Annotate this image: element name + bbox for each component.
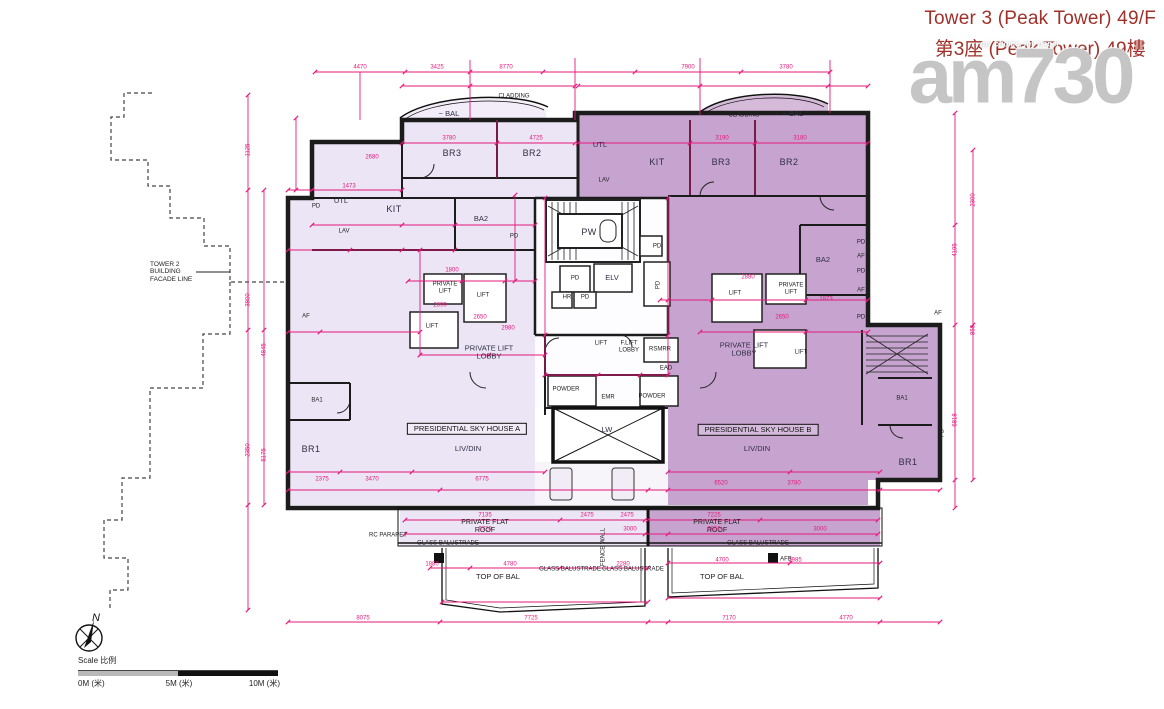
- dimension-label: 2300: [971, 193, 978, 206]
- dimension-label: 3000: [813, 527, 826, 534]
- plan-label: TOP OF BAL: [700, 573, 744, 581]
- north-arrow-icon: [72, 618, 112, 658]
- dimension-label: 4845: [262, 343, 269, 356]
- dimension-label: 1473: [342, 184, 355, 191]
- plan-label: PD: [312, 204, 320, 211]
- plan-labels: ~ BALCLADDINGBR3BR2PDUTLKITLAVBA2PDPRIVA…: [0, 0, 1164, 709]
- scale-segment-black: [178, 671, 278, 676]
- plan-label: PW: [581, 227, 596, 237]
- plan-label: PD: [656, 281, 663, 289]
- plan-label: PD: [940, 429, 947, 437]
- plan-label: CLADDING: [728, 113, 759, 120]
- plan-label: HR: [563, 295, 572, 302]
- scale-tick-5m: 5M (米): [166, 678, 193, 689]
- dimension-label: 6720: [478, 527, 491, 534]
- dimension-label: 8075: [356, 616, 369, 623]
- dimension-label: 2880: [741, 275, 754, 282]
- plan-label: ~ BAL: [439, 110, 460, 118]
- dimension-label: 4725: [529, 136, 542, 143]
- plan-label: AF: [302, 314, 310, 321]
- plan-label: GLASS BALUSTRADE: [602, 567, 664, 574]
- plan-label: BR2: [780, 157, 799, 167]
- dimension-label: 6850: [707, 527, 720, 534]
- scale-tick-0m: 0M (米): [78, 678, 105, 689]
- plan-label: LIFT: [729, 291, 741, 298]
- dimension-label: 3780: [442, 136, 455, 143]
- dimension-label: 3470: [365, 477, 378, 484]
- plan-label: KIT: [649, 157, 664, 167]
- plan-label: LIV/DIN: [455, 445, 481, 453]
- dimension-label: 2650: [473, 315, 486, 322]
- dimension-label: 2350: [246, 443, 253, 456]
- dimension-label: 1985: [788, 558, 801, 565]
- plan-label: PD: [653, 244, 661, 251]
- plan-label: RC PARAPET: [369, 533, 407, 540]
- dimension-label: 4780: [503, 562, 516, 569]
- plan-label: LW: [602, 426, 613, 434]
- plan-label: POWDER: [553, 387, 580, 394]
- dimension-label: 2690: [433, 303, 446, 310]
- plan-label: LAV: [599, 178, 610, 185]
- scale-bar: Scale 比例 0M (米) 5M (米) 10M (米): [78, 655, 280, 690]
- plan-label: LIFT: [426, 324, 438, 331]
- plan-label: PRIVATE LIFT: [775, 282, 807, 295]
- dimension-label: 1125: [246, 144, 253, 157]
- dimension-label: 8770: [499, 65, 512, 72]
- dimension-label: 6775: [475, 477, 488, 484]
- plan-label: TOWER 2 BUILDING FACADE LINE: [150, 261, 200, 283]
- dimension-label: 6520: [714, 481, 727, 488]
- dimension-label: 1873: [819, 297, 832, 304]
- plan-label: BA1: [896, 396, 907, 403]
- dimension-label: 3780: [779, 65, 792, 72]
- floorplan-canvas: ~ BALCLADDINGBR3BR2PDUTLKITLAVBA2PDPRIVA…: [0, 0, 1164, 709]
- plan-label: LAV: [339, 229, 350, 236]
- scale-tick-10m: 10M (米): [249, 678, 280, 689]
- unit-name-label: PRESIDENTIAL SKY HOUSE A: [407, 423, 527, 435]
- plan-label: FENCE WALL: [601, 528, 608, 566]
- plan-label: PRIVATE LIFT LOBBY: [718, 342, 770, 359]
- dimension-label: 7170: [722, 616, 735, 623]
- plan-label: BR3: [712, 157, 731, 167]
- plan-label: AF: [857, 254, 865, 261]
- dimension-label: 2680: [365, 155, 378, 162]
- plan-label: PD: [581, 295, 589, 302]
- dimension-label: 3180: [793, 136, 806, 143]
- dimension-label: 4770: [839, 616, 852, 623]
- plan-label: PD: [857, 315, 865, 322]
- scale-segment-gray: [78, 671, 178, 676]
- plan-label: CLADDING: [498, 94, 529, 101]
- plan-label: PD: [571, 276, 579, 283]
- plan-label: ELV: [605, 274, 619, 282]
- plan-label: RSMRR: [649, 347, 671, 354]
- plan-label: EMR: [601, 395, 614, 402]
- dimension-label: 3425: [430, 65, 443, 72]
- unit-name-label: PRESIDENTIAL SKY HOUSE B: [698, 424, 819, 436]
- dimension-label: 2650: [775, 315, 788, 322]
- plan-label: UTL: [334, 197, 348, 205]
- dimension-label: 3800: [246, 293, 253, 306]
- plan-label: ~ BAL: [783, 110, 804, 118]
- dimension-label: 7900: [681, 65, 694, 72]
- plan-label: PD: [510, 234, 518, 241]
- scale-label: Scale 比例: [78, 655, 280, 666]
- plan-label: UTL: [593, 141, 607, 149]
- plan-label: LIFT: [595, 341, 607, 348]
- dimension-label: 4195: [953, 243, 960, 256]
- plan-label: BR1: [899, 457, 918, 467]
- dimension-label: 7725: [524, 616, 537, 623]
- plan-label: BR3: [443, 148, 462, 158]
- dimension-label: 4700: [715, 558, 728, 565]
- dimension-label: 7135: [478, 513, 491, 520]
- plan-label: PRIVATE LIFT LOBBY: [463, 345, 515, 362]
- dimension-label: 2475: [580, 513, 593, 520]
- dimension-label: 2375: [315, 477, 328, 484]
- plan-label: GLASS BALUSTRADE: [417, 541, 479, 548]
- plan-label: LIFT: [795, 350, 807, 357]
- dimension-label: 2280: [616, 562, 629, 569]
- plan-label: GLASS BALUSTRADE: [727, 541, 789, 548]
- dimension-label: 2980: [501, 326, 514, 333]
- plan-label: AF: [857, 288, 865, 295]
- dimension-label: 3190: [715, 136, 728, 143]
- plan-label: AF: [934, 311, 942, 318]
- dimension-label: 858: [971, 325, 978, 335]
- dimension-label: 7225: [707, 513, 720, 520]
- plan-label: PD: [857, 240, 865, 247]
- plan-label: F.LIFT LOBBY: [613, 340, 645, 353]
- title-block: Tower 3 (Peak Tower) 49/F 第3座 (Peak Towe…: [924, 8, 1156, 61]
- plan-label: BR1: [302, 444, 321, 454]
- page-title-zh: 第3座 (Peak Tower) 49樓: [924, 34, 1156, 61]
- dimension-label: 4470: [353, 65, 366, 72]
- dimension-label: 5175: [262, 448, 269, 461]
- dimension-label: 3000: [623, 527, 636, 534]
- plan-label: LIFT: [477, 293, 489, 300]
- plan-label: PD: [857, 269, 865, 276]
- plan-label: GLASS BALUSTRADE: [539, 567, 601, 574]
- scale-bar-graphic: [78, 670, 278, 676]
- north-label: N: [92, 612, 100, 624]
- plan-label: BA1: [311, 398, 322, 405]
- plan-label: BA2: [816, 256, 830, 264]
- plan-label: PRIVATE LIFT: [429, 281, 461, 294]
- page-title-en: Tower 3 (Peak Tower) 49/F: [924, 8, 1156, 30]
- dimension-label: 3780: [787, 481, 800, 488]
- plan-label: POWDER: [639, 394, 666, 401]
- dimension-label: 6818: [953, 413, 960, 426]
- plan-label: TOP OF BAL: [476, 573, 520, 581]
- plan-label: BR2: [523, 148, 542, 158]
- plan-label: KIT: [386, 204, 401, 214]
- dimension-label: 1880: [425, 562, 438, 569]
- dimension-label: 1800: [445, 268, 458, 275]
- plan-label: BA2: [474, 215, 488, 223]
- plan-label: LIV/DIN: [744, 445, 770, 453]
- plan-label: EAD: [660, 366, 672, 373]
- dimension-label: 2475: [620, 513, 633, 520]
